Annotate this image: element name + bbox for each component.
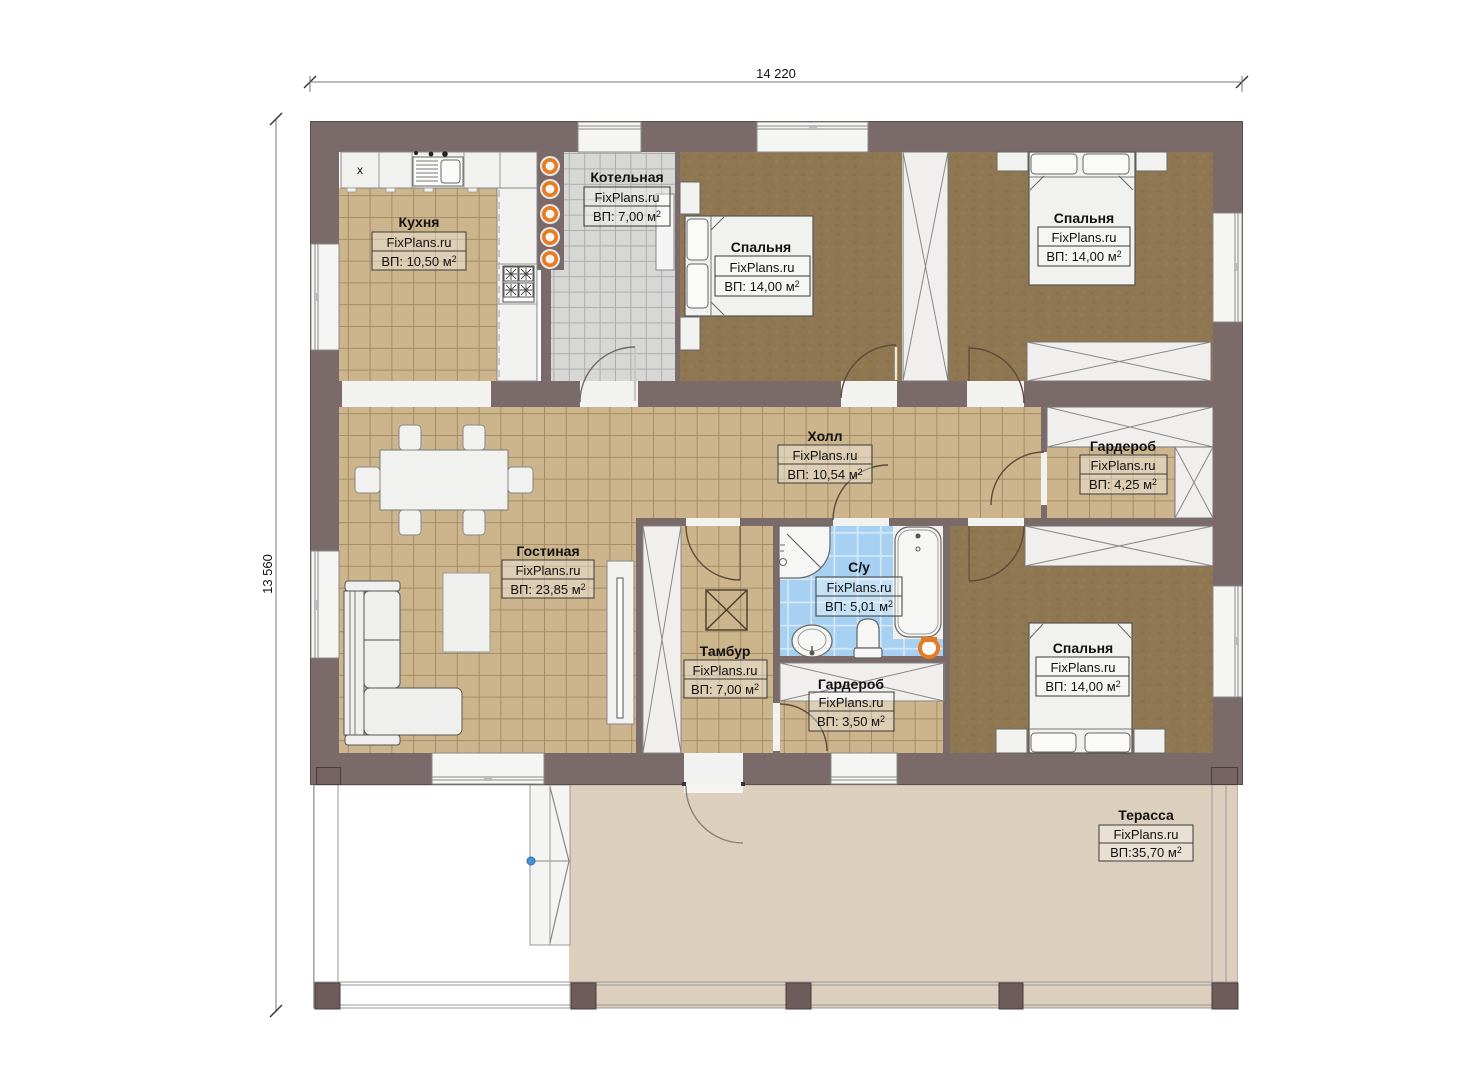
svg-text:FixPlans.ru: FixPlans.ru [515,563,580,578]
svg-text:FixPlans.ru: FixPlans.ru [792,448,857,463]
svg-text:ВП: 5,01 м2: ВП: 5,01 м2 [825,599,893,614]
svg-text:14 220: 14 220 [756,66,796,81]
svg-text:FixPlans.ru: FixPlans.ru [1113,827,1178,842]
svg-text:ВП: 23,85 м2: ВП: 23,85 м2 [510,582,585,597]
svg-text:FixPlans.ru: FixPlans.ru [386,235,451,250]
svg-text:Гардероб: Гардероб [818,676,885,692]
svg-text:ВП: 10,50 м2: ВП: 10,50 м2 [381,254,456,269]
svg-text:ВП: 14,00 м2: ВП: 14,00 м2 [724,279,799,294]
svg-text:Терасса: Терасса [1118,807,1174,823]
svg-text:Тамбур: Тамбур [700,643,751,659]
svg-text:С/у: С/у [848,559,870,575]
svg-text:FixPlans.ru: FixPlans.ru [1051,230,1116,245]
svg-text:FixPlans.ru: FixPlans.ru [1050,660,1115,675]
svg-text:FixPlans.ru: FixPlans.ru [818,695,883,710]
svg-text:ВП: 14,00 м2: ВП: 14,00 м2 [1045,679,1120,694]
svg-text:ВП:35,70 м2: ВП:35,70 м2 [1110,845,1182,860]
svg-text:13 560: 13 560 [260,554,275,594]
svg-text:FixPlans.ru: FixPlans.ru [826,580,891,595]
svg-text:FixPlans.ru: FixPlans.ru [692,663,757,678]
svg-text:Спальня: Спальня [1054,210,1114,226]
svg-text:ВП: 14,00 м2: ВП: 14,00 м2 [1046,249,1121,264]
svg-text:ВП: 7,00 м2: ВП: 7,00 м2 [593,209,661,224]
svg-text:Гостиная: Гостиная [516,543,579,559]
svg-text:Котельная: Котельная [590,169,663,185]
svg-text:ВП: 3,50 м2: ВП: 3,50 м2 [817,714,885,729]
svg-text:ВП: 10,54 м2: ВП: 10,54 м2 [787,467,862,482]
svg-text:Кухня: Кухня [399,214,440,230]
svg-text:ВП: 7,00 м2: ВП: 7,00 м2 [691,682,759,697]
svg-text:ВП: 4,25 м2: ВП: 4,25 м2 [1089,477,1157,492]
svg-text:Гардероб: Гардероб [1090,438,1157,454]
svg-text:x: x [357,163,363,177]
svg-text:FixPlans.ru: FixPlans.ru [729,260,794,275]
svg-text:Спальня: Спальня [1053,640,1113,656]
svg-text:Спальня: Спальня [731,239,791,255]
svg-text:FixPlans.ru: FixPlans.ru [594,190,659,205]
svg-text:Холл: Холл [807,428,842,444]
svg-text:FixPlans.ru: FixPlans.ru [1090,458,1155,473]
